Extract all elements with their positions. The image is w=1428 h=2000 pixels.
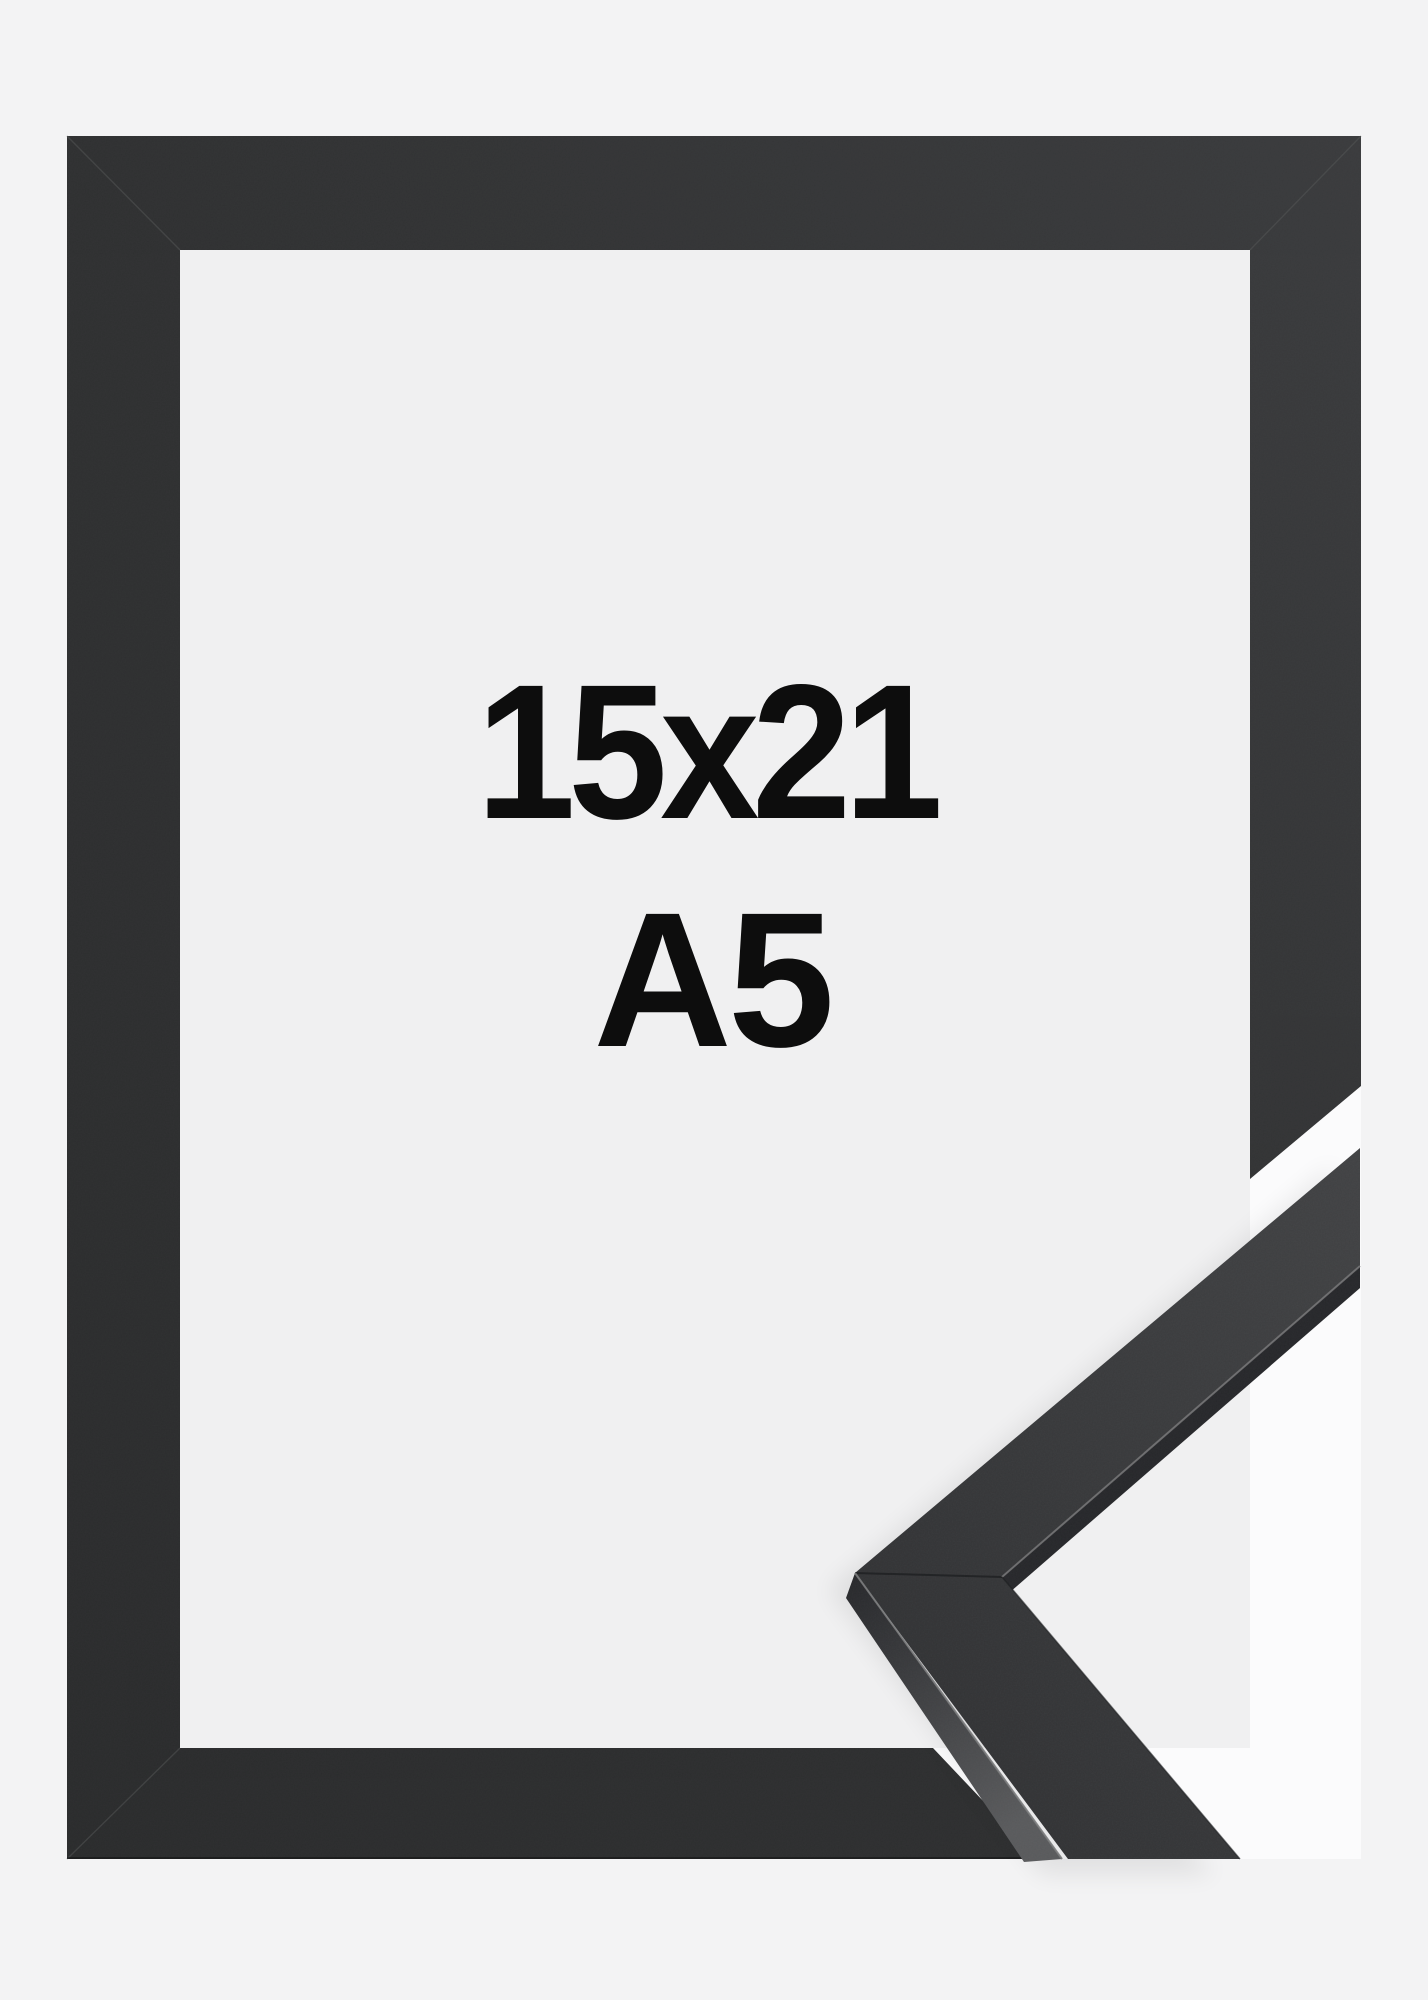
frame-product-photo: 15x21 A5 [0,0,1428,2000]
format-text: A5 [593,884,830,1076]
size-text: 15x21 [476,656,935,848]
